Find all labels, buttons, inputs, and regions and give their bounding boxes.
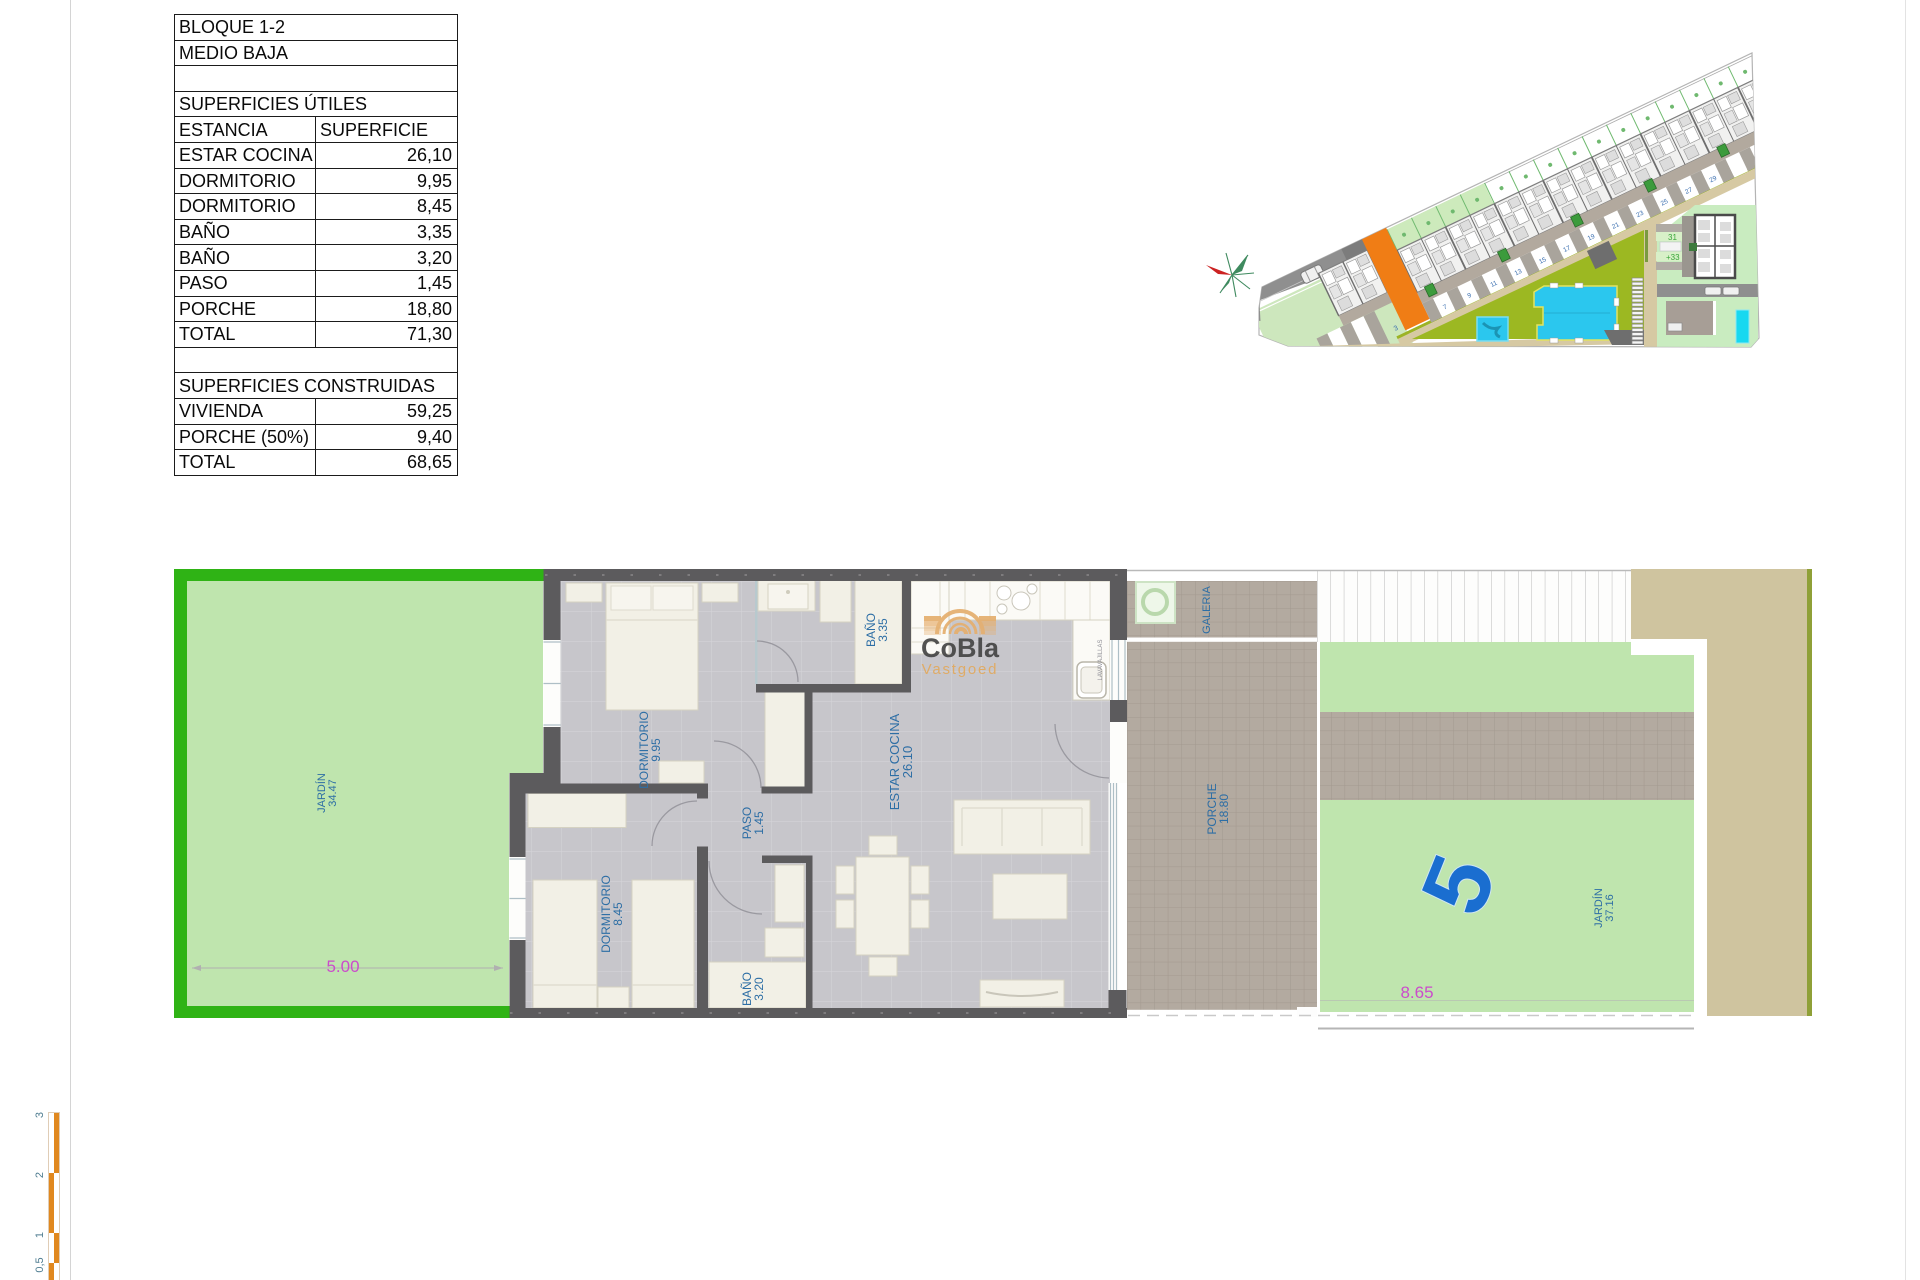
svg-text:8.45: 8.45 [611,902,625,926]
svg-text:LAVAVAJILLAS: LAVAVAJILLAS [1098,640,1104,681]
svg-text:GALERIA: GALERIA [1201,585,1213,633]
svg-text:26.10: 26.10 [900,746,915,779]
svg-text:18.80: 18.80 [1217,794,1231,824]
svg-text:37.16: 37.16 [1604,894,1616,922]
svg-text:+33: +33 [1666,253,1680,262]
svg-text:31: 31 [1668,233,1677,242]
svg-text:Vastgoed: Vastgoed [922,661,999,678]
svg-text:3.20: 3.20 [752,977,766,1001]
svg-text:9.95: 9.95 [649,738,663,762]
svg-text:1.45: 1.45 [752,811,766,835]
svg-text:34.47: 34.47 [327,779,339,807]
svg-text:CoBla: CoBla [921,633,1000,663]
svg-text:3.35: 3.35 [876,618,890,642]
svg-text:8.65: 8.65 [1400,983,1433,1002]
svg-text:5.00: 5.00 [326,957,359,976]
